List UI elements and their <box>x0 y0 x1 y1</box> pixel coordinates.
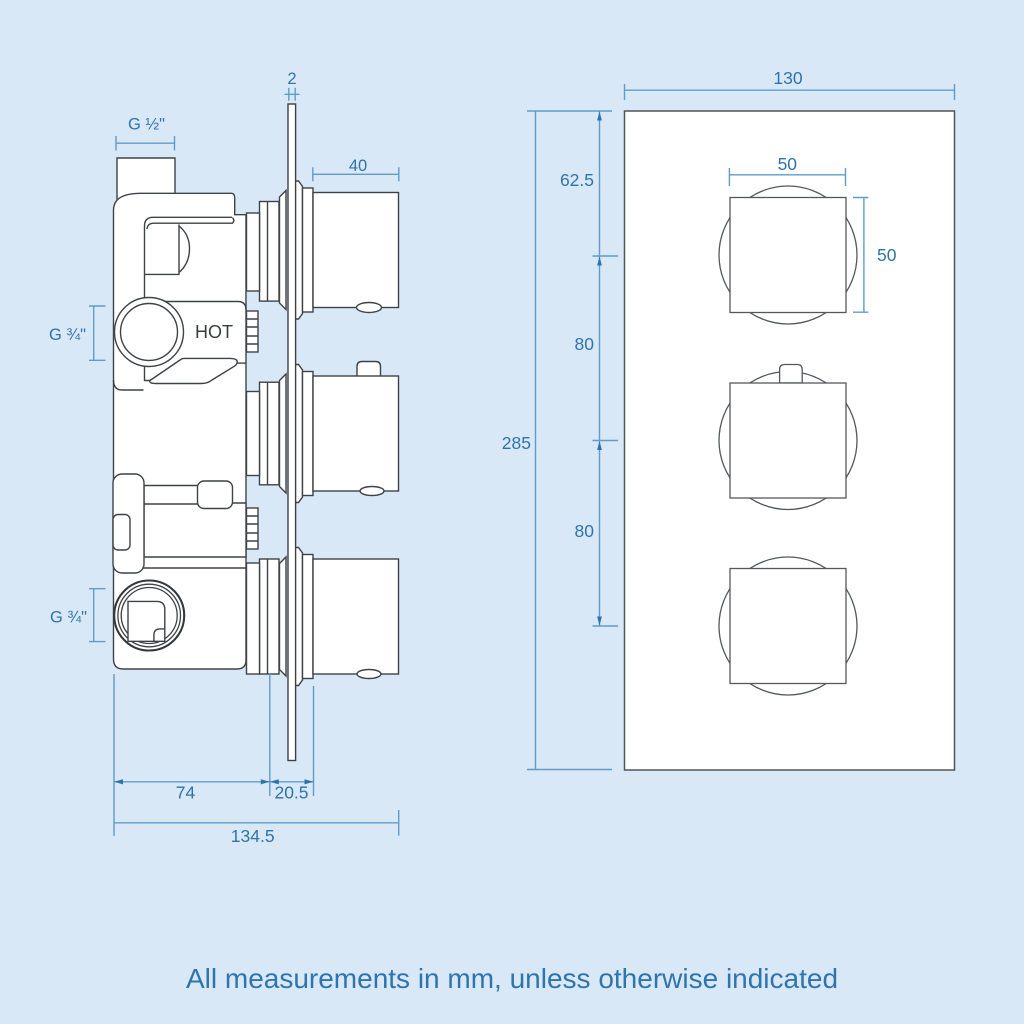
svg-text:All measurements in mm, unless: All measurements in mm, unless otherwise… <box>186 963 838 994</box>
svg-text:G ¾": G ¾" <box>50 609 87 627</box>
svg-text:285: 285 <box>502 433 531 453</box>
svg-text:74: 74 <box>176 783 196 803</box>
svg-text:50: 50 <box>877 245 897 265</box>
svg-text:HOT: HOT <box>195 322 233 342</box>
svg-text:62.5: 62.5 <box>560 170 594 190</box>
svg-text:40: 40 <box>349 157 367 175</box>
svg-text:20.5: 20.5 <box>274 783 308 803</box>
svg-text:134.5: 134.5 <box>231 826 275 846</box>
svg-text:80: 80 <box>575 334 595 354</box>
svg-text:G ½": G ½" <box>128 116 165 134</box>
svg-text:G ¾": G ¾" <box>49 326 86 344</box>
svg-text:2: 2 <box>287 70 296 88</box>
svg-text:130: 130 <box>773 68 802 88</box>
svg-text:80: 80 <box>575 521 595 541</box>
svg-text:50: 50 <box>778 154 798 174</box>
